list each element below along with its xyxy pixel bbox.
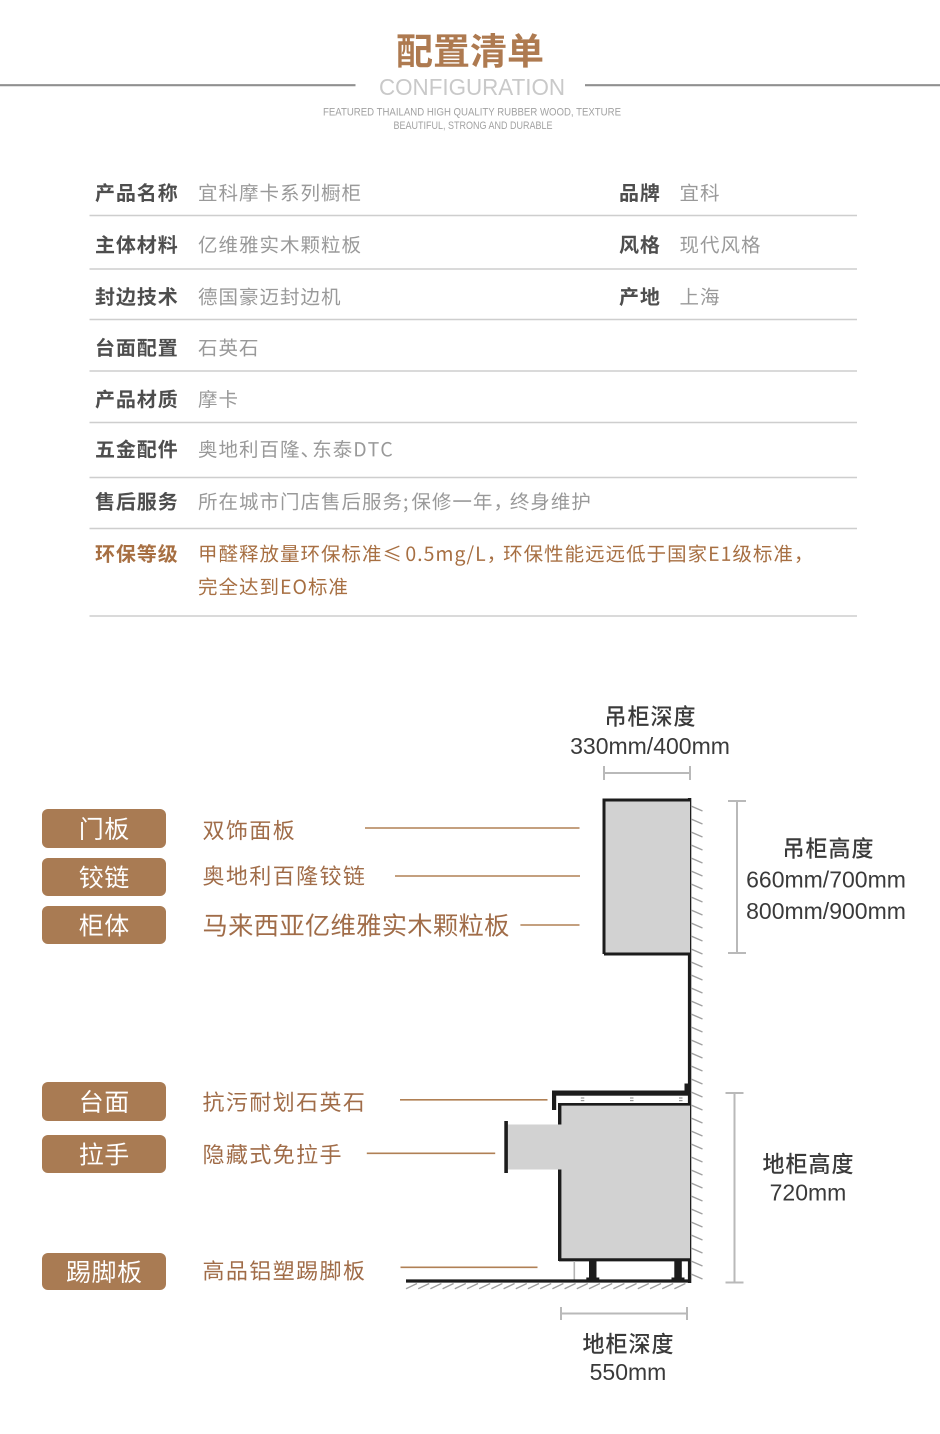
svg-text:800mm/900mm: 800mm/900mm <box>746 898 906 924</box>
svg-text:550mm: 550mm <box>590 1359 667 1385</box>
svg-text:CONFIGURATION: CONFIGURATION <box>379 74 565 100</box>
svg-text:FEATURED THAILAND HIGH QUALITY: FEATURED THAILAND HIGH QUALITY RUBBER WO… <box>323 107 621 119</box>
svg-text:330mm/400mm: 330mm/400mm <box>570 733 730 759</box>
svg-text:720mm: 720mm <box>770 1179 847 1205</box>
svg-text:660mm/700mm: 660mm/700mm <box>746 866 906 892</box>
svg-text:BEAUTIFUL, STRONG AND DURABLE: BEAUTIFUL, STRONG AND DURABLE <box>394 120 553 132</box>
